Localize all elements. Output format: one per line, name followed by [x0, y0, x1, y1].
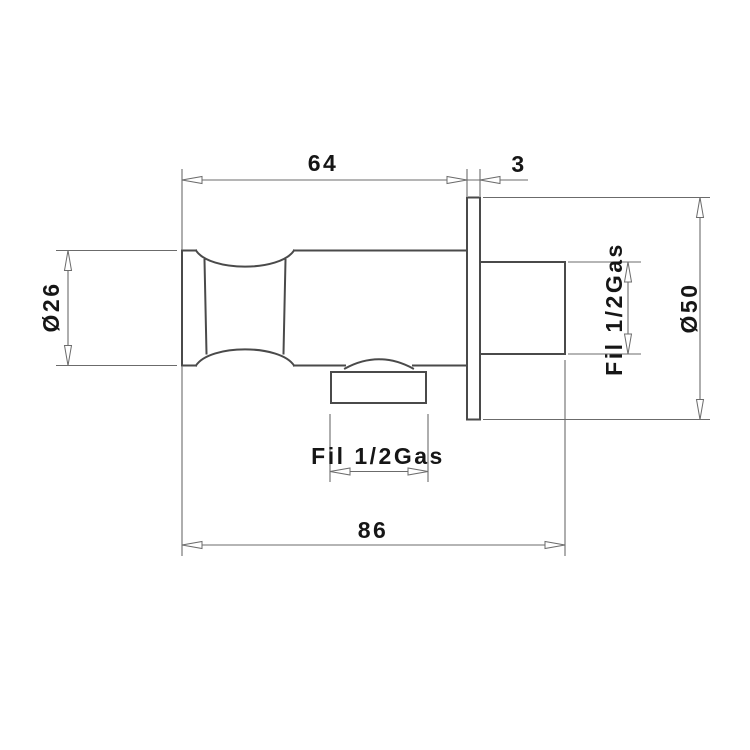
technical-drawing: 64 3 Ø26 Ø50 Fil 1/2Gas Fil 1/2Gas 86 [0, 0, 750, 750]
arrow-left-icon [182, 542, 202, 549]
body-cylinder-outline [182, 251, 467, 366]
dim-handle-diameter [56, 251, 177, 366]
dim-body-length-and-plate [182, 169, 528, 196]
handle-profile [196, 251, 294, 366]
dimension-labels: 64 3 Ø26 Ø50 Fil 1/2Gas Fil 1/2Gas 86 [38, 150, 702, 543]
wall-flange-plate [467, 198, 480, 420]
label-body-length: 64 [308, 150, 339, 176]
label-overall-length: 86 [358, 517, 389, 543]
arrow-down-icon [697, 400, 704, 420]
arrow-left-icon [480, 177, 500, 184]
label-wall-thread: Fil 1/2Gas [601, 242, 627, 376]
label-handle-diameter: Ø26 [38, 282, 64, 333]
label-plate-thickness: 3 [511, 151, 526, 177]
wall-thread-stub [480, 262, 565, 354]
arrow-left-icon [182, 177, 202, 184]
outlet-nut [331, 372, 426, 403]
label-outlet-thread: Fil 1/2Gas [311, 443, 445, 469]
arrow-left-icon [330, 468, 350, 475]
outlet-fillet-arc [345, 359, 413, 368]
arrow-down-icon [65, 346, 72, 366]
drawing-svg: 64 3 Ø26 Ø50 Fil 1/2Gas Fil 1/2Gas 86 [0, 0, 750, 750]
arrow-up-icon [697, 198, 704, 218]
arrow-up-icon [65, 251, 72, 271]
fitting-outline [182, 198, 565, 420]
arrow-right-icon [408, 468, 428, 475]
arrow-right-icon [447, 177, 467, 184]
label-flange-diameter: Ø50 [676, 283, 702, 334]
arrow-right-icon [545, 542, 565, 549]
